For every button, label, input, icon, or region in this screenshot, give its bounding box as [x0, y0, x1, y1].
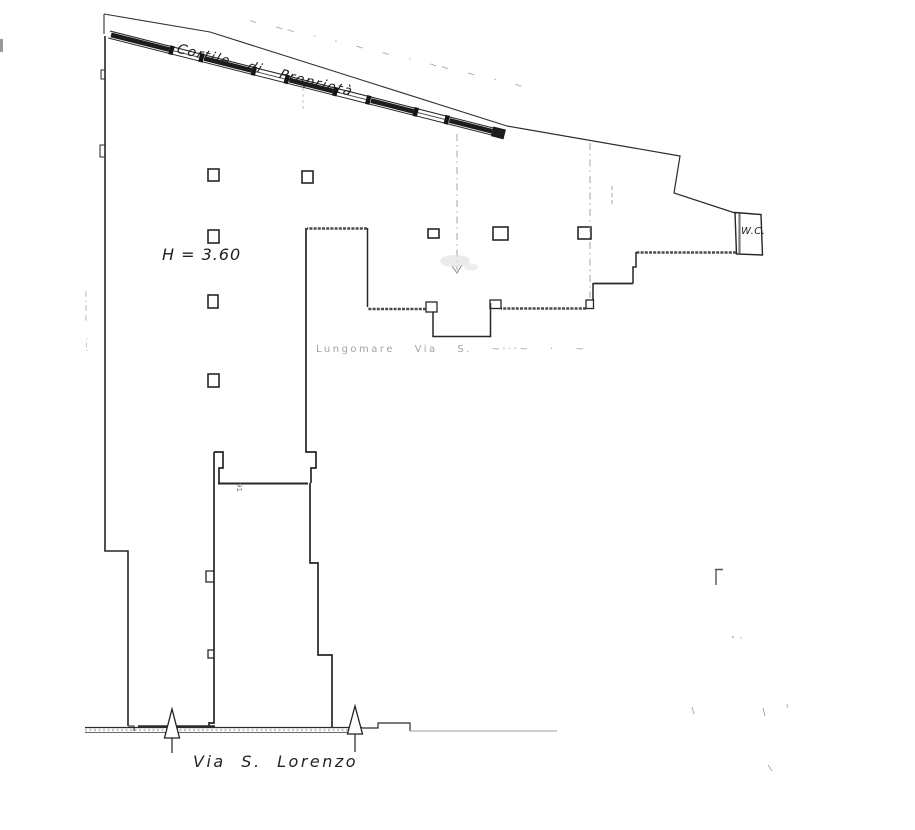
- corridor-left-wall: [206, 452, 308, 727]
- inner-wall: [306, 228, 332, 727]
- margin-scribble-b: ·~·: [82, 338, 91, 353]
- margin-scribble-a: ~·~~: [80, 290, 90, 323]
- wc-label: W.C.: [741, 226, 765, 237]
- street-label: Via S. Lorenzo: [193, 752, 358, 771]
- tiny-dimension-note: 91: [235, 483, 243, 492]
- floor-plan-drawing: [0, 0, 915, 830]
- entrance-arrow-right: [348, 706, 363, 752]
- scan-artifacts: [0, 39, 788, 771]
- entrance-arrow-left: [165, 709, 180, 753]
- ceiling-height-label: H = 3.60: [162, 245, 241, 264]
- scanned-floor-plan-page: ~ ~~ · · ~ ~ · ~~ ~ · ~ Cortile di Propr…: [0, 0, 915, 830]
- street-faint-label: Lungomare Via S. ~···~ · ~: [316, 344, 586, 355]
- street-ground-line: [85, 723, 557, 733]
- pencil-smudges: [440, 255, 478, 271]
- wing-top-outline: [507, 126, 735, 213]
- wing-lower-boundary: [307, 228, 736, 337]
- left-perimeter-wall: [100, 36, 134, 731]
